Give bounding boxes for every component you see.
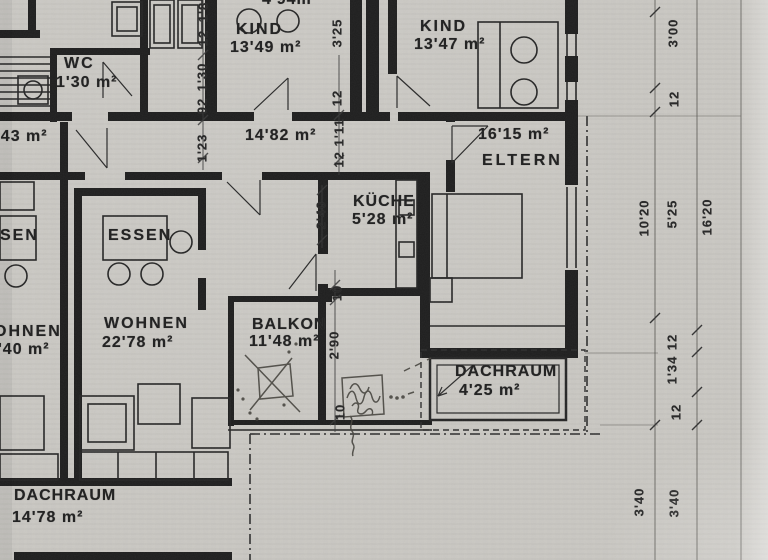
dim-right-1620: 16'20 <box>700 198 715 235</box>
dim-left-chain-2: 1'30 <box>195 63 210 92</box>
room-area-kueche: 5'28 m² <box>352 211 414 229</box>
dim-flur-left: 1'23 <box>195 134 210 163</box>
dim-kueche-height: 2'40 <box>314 201 329 230</box>
floorplan-scan: 4'94m WC 1'30 m² KIND 13'49 m² KIND 13'4… <box>0 0 768 560</box>
room-label-eltern: ELTERN <box>482 152 563 170</box>
dim-left-chain-3: 92 <box>195 98 210 114</box>
room-area-eltern: 16'15 m² <box>478 126 549 144</box>
room-area-dachraum-right: 4'25 m² <box>459 382 521 400</box>
room-label-wohnen: WOHNEN <box>104 315 189 333</box>
room-label-kind-left: KIND <box>236 21 283 39</box>
room-area-kind-left: 13'49 m² <box>230 39 301 57</box>
dim-kind-width: 3'25 <box>330 19 345 48</box>
partial-left-area-label: '43 m² <box>0 128 48 146</box>
room-area-wohnen-left: '40 m² <box>0 341 50 359</box>
dim-right-12-top: 12 <box>667 91 682 107</box>
dim-right-12-b: 12 <box>669 404 684 420</box>
dim-right-340-a: 3'40 <box>632 488 647 517</box>
room-label-wc: WC <box>64 55 95 73</box>
dim-right-300: 3'00 <box>666 19 681 48</box>
room-label-dachraum-bottom: DACHRAUM <box>14 487 116 505</box>
dim-right-12-a: 12 <box>665 334 680 350</box>
room-area-flur: 14'82 m² <box>245 127 316 145</box>
room-label-dachraum-right: DACHRAUM <box>455 363 557 381</box>
dim-right-525: 5'25 <box>665 200 680 229</box>
room-area-balkon: 11'48 m² <box>249 333 320 351</box>
room-area-dachraum-bottom: 14'78 m² <box>12 509 83 527</box>
room-label-kueche: KÜCHE <box>353 193 415 211</box>
room-label-essen: ESSEN <box>108 227 172 245</box>
dim-balkon-height: 2'90 <box>327 331 342 360</box>
room-area-wohnen: 22'78 m² <box>102 334 173 352</box>
partial-top-area-label: 4'94m <box>262 0 312 9</box>
dim-right-134: 1'34 <box>665 356 680 385</box>
room-label-kind-right: KIND <box>420 18 467 36</box>
dim-wall-bottom: 10 <box>333 404 348 420</box>
room-label-wohnen-left: OHNEN <box>0 323 62 341</box>
room-label-balkon: BALKON <box>252 316 326 334</box>
room-label-essen-left: SEN <box>0 227 39 245</box>
dim-hall-mid: 12 1'11 <box>332 118 347 167</box>
dim-wall-top: 10 <box>330 285 345 301</box>
room-area-wc: 1'30 m² <box>56 74 118 92</box>
dim-left-chain-1: 12 <box>196 30 211 46</box>
dim-hall-wall: 12 <box>330 90 345 106</box>
dim-right-340-b: 3'40 <box>667 489 682 518</box>
dim-left-chain-0: 1'8 <box>196 2 211 23</box>
dim-right-1020: 10'20 <box>637 199 652 236</box>
room-area-kind-right: 13'47 m² <box>414 36 485 54</box>
